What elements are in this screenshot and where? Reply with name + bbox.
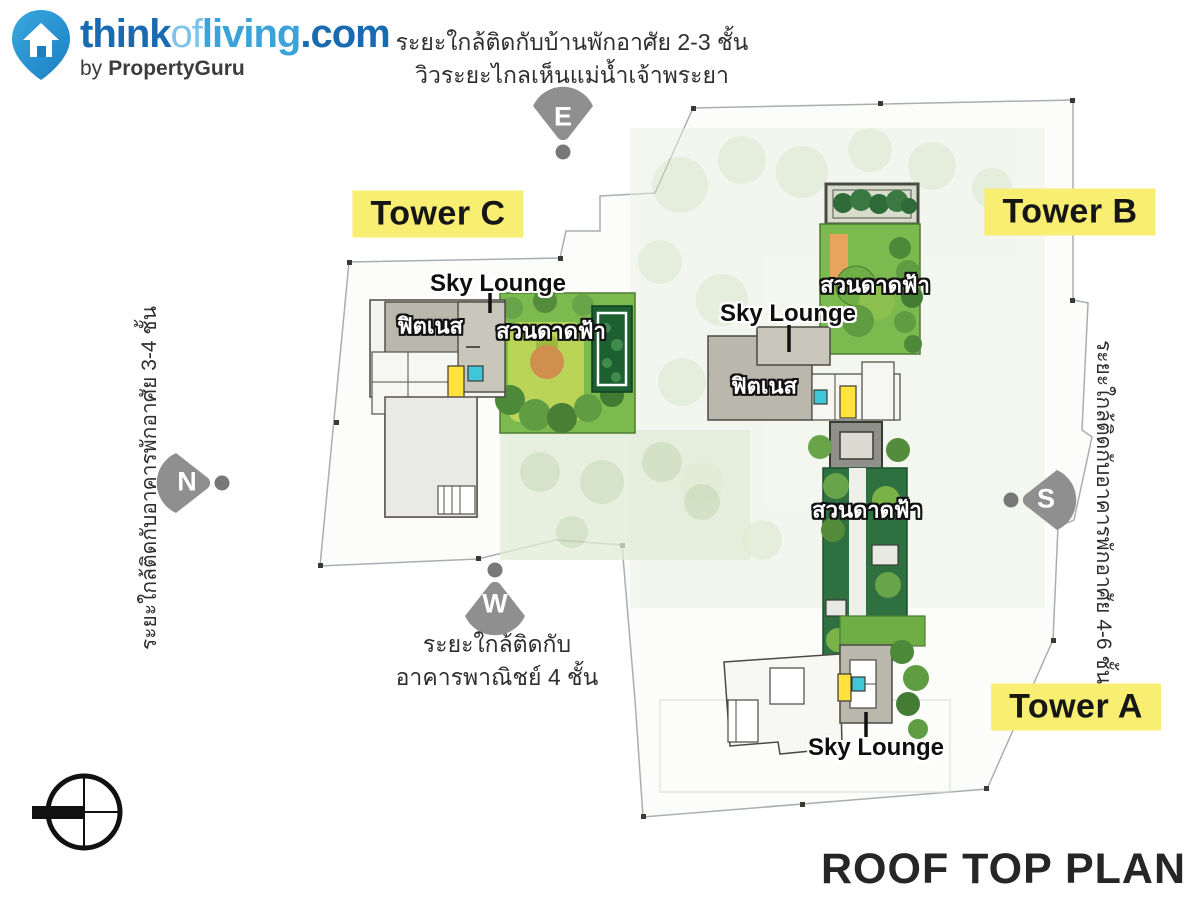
tagline-by: by [80, 57, 102, 80]
brand-wordmark: thinkofliving.com [80, 14, 390, 54]
sky-lounge-label-a: Sky Lounge [808, 734, 944, 762]
direction-marker-west: W [450, 547, 540, 637]
logo-text: thinkofliving.com byPropertyGuru [80, 14, 390, 79]
note-north-side: ระยะใกล้ติดกับบ้านพักอาศัย 2-3 ชั้น วิวร… [396, 26, 749, 93]
tower-b-label: Tower B [984, 189, 1155, 236]
brand-of: of [171, 12, 202, 56]
note-top-line1: ระยะใกล้ติดกับบ้านพักอาศัย 2-3 ชั้น [396, 26, 749, 59]
roof-garden-label-c: สวนดาดฟ้า [496, 314, 606, 349]
page-title: ROOF TOP PLAN [821, 845, 1186, 894]
direction-fan-icon [988, 455, 1078, 545]
fitness-label-b: ฟิตเนส [731, 369, 797, 404]
brand-dotcom: .com [300, 12, 389, 56]
direction-marker-south: S [988, 455, 1078, 545]
sky-lounge-label-c: Sky Lounge [430, 270, 566, 298]
house-pin-icon [10, 8, 72, 82]
tagline-propertyguru: PropertyGuru [108, 57, 245, 80]
ghost-courtyard-c [500, 430, 750, 560]
rooftop-plan-page: thinkofliving.com byPropertyGuru ระยะใกล… [0, 0, 1200, 907]
tower-c-label: Tower C [352, 191, 523, 238]
roof-garden-label-b: สวนดาดฟ้า [820, 268, 930, 303]
direction-letter-n: N [177, 466, 197, 497]
sky-lounge-roof-b [757, 327, 830, 365]
pool-c [468, 366, 483, 381]
direction-marker-east: E [518, 85, 608, 175]
tower-a-label: Tower A [991, 684, 1161, 731]
fitness-label-c: ฟิตเนส [397, 309, 463, 344]
direction-letter-w: W [482, 588, 507, 619]
sky-lounge-label-b: Sky Lounge [720, 300, 856, 328]
pool-b [814, 390, 827, 404]
note-south-side: ระยะใกล้ติดกับ อาคารพาณิชย์ 4 ชั้น [396, 628, 599, 695]
garden-band-a [840, 616, 925, 646]
elevator-a [838, 674, 851, 701]
brand-think: think [80, 12, 171, 56]
direction-fan-icon [155, 438, 245, 528]
note-bottom-line2: อาคารพาณิชย์ 4 ชั้น [396, 661, 599, 694]
north-arrow-compass-icon [26, 762, 130, 862]
note-east-side: ระยะใกล้ติดกับอาคารพักอาศัย 4-6 ชั้น [1088, 340, 1118, 684]
thinkofliving-logo[interactable]: thinkofliving.com byPropertyGuru [10, 8, 390, 82]
direction-marker-north: N [155, 438, 245, 528]
pool-a [852, 677, 865, 691]
logo-tagline: byPropertyGuru [80, 58, 390, 79]
direction-letter-s: S [1037, 483, 1055, 514]
tower-c-roof-garden [495, 289, 635, 433]
roof-garden-label-middle: สวนดาดฟ้า [812, 493, 922, 528]
direction-letter-e: E [554, 101, 572, 132]
brand-living: living [202, 12, 300, 56]
elevator-b [840, 386, 856, 418]
